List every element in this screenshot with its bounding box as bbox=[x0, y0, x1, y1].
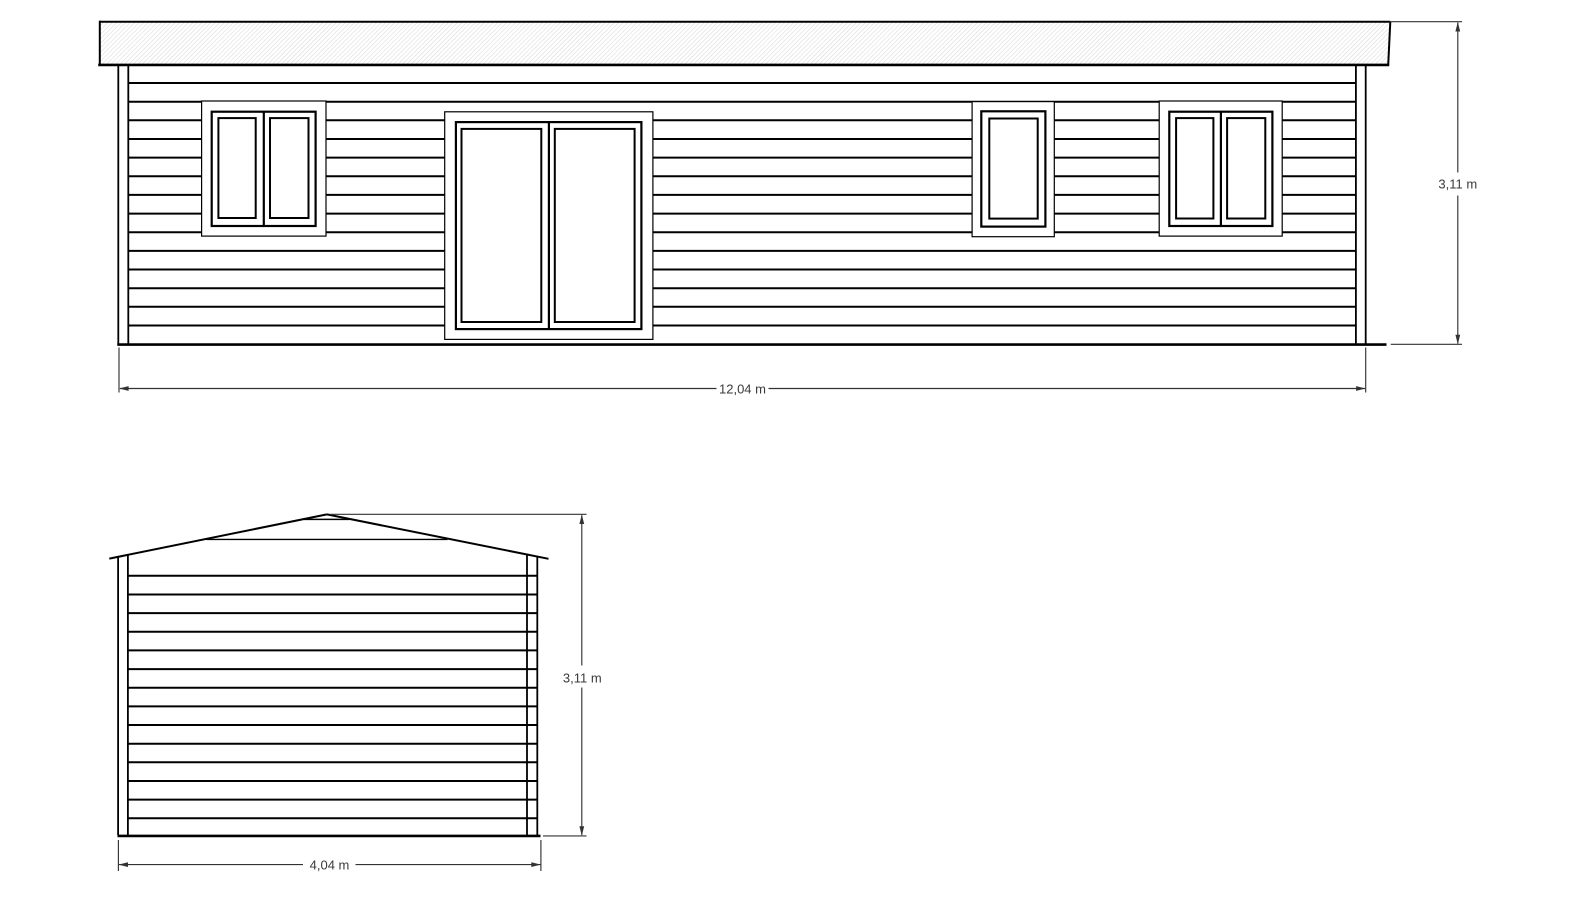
svg-text:3,11 m: 3,11 m bbox=[1438, 177, 1477, 192]
svg-text:3,11 m: 3,11 m bbox=[563, 670, 602, 685]
svg-text:12,04 m: 12,04 m bbox=[719, 381, 766, 396]
svg-text:4,04 m: 4,04 m bbox=[310, 857, 350, 872]
